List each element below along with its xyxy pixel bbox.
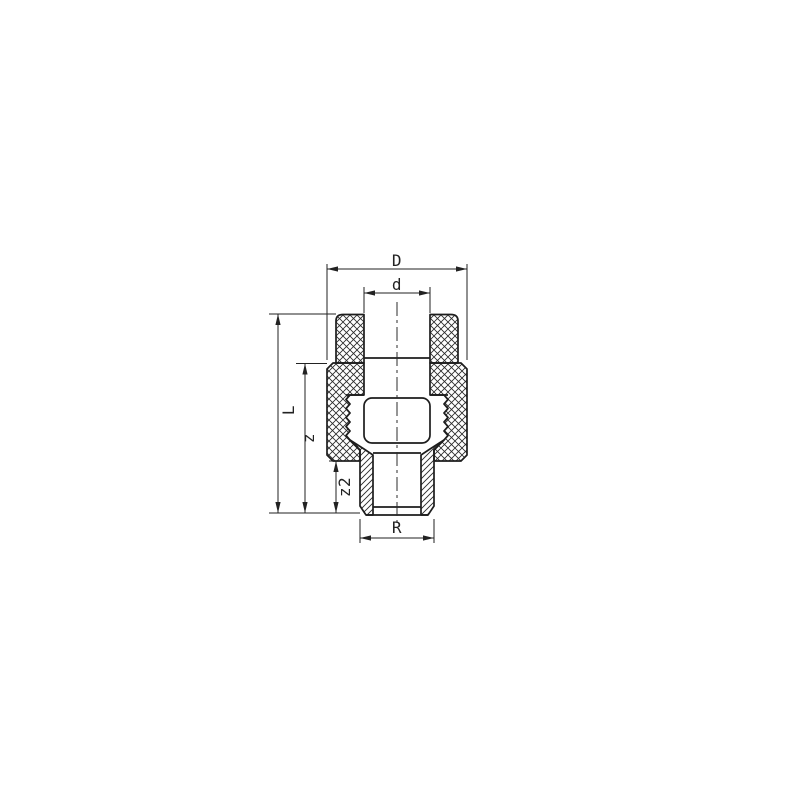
- dim-label-z: z: [299, 433, 318, 443]
- dim-label-D: D: [392, 251, 402, 270]
- dim-label-R: R: [392, 518, 402, 537]
- socket-wall-left: [336, 315, 364, 364]
- drawing-page: D d L z z2 R: [0, 0, 800, 800]
- dim-label-z2: z2: [335, 477, 354, 497]
- dim-label-L: L: [279, 405, 298, 415]
- dim-label-d: d: [392, 275, 402, 294]
- technical-drawing: D d L z z2 R: [0, 0, 800, 800]
- socket-wall-right: [430, 315, 458, 364]
